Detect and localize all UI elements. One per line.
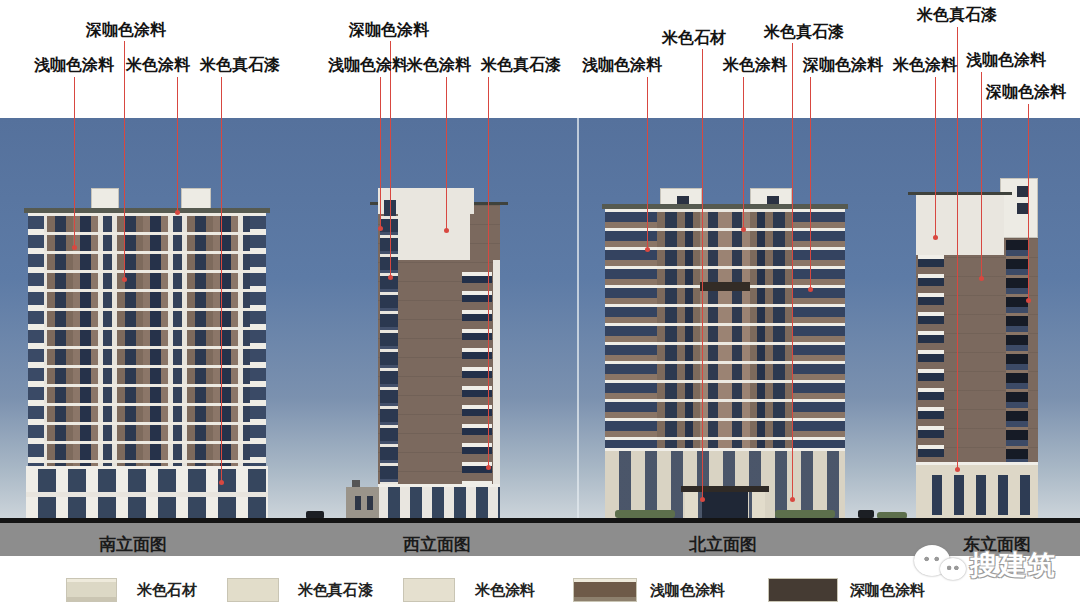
callout-leader-line [446,77,447,231]
material-callout-label: 深咖色涂料 [803,55,883,76]
balcony-stack [605,209,657,448]
upper-white-band [916,195,1004,255]
facade [28,213,266,466]
legend-label: 浅咖色涂料 [650,581,725,600]
legend-swatch-beige-paint [403,578,455,602]
balcony-stack [28,213,44,466]
legend-swatch-beige-stone-paint [227,578,279,602]
material-callout-label: 米色涂料 [407,55,471,76]
legend-label: 米色真石漆 [298,581,373,600]
balcony-stack [918,255,944,462]
callout-leader-line [647,77,648,250]
legend-swatch-beige-stone [66,578,117,602]
material-callout-label: 米色涂料 [126,55,190,76]
shrubs [775,510,835,518]
material-callout-label: 浅咖色涂料 [966,50,1046,71]
shrubs [615,510,675,518]
material-callout-label: 浅咖色涂料 [328,55,408,76]
callout-leader-line [74,77,75,248]
watermark-text: 搜建筑 [970,547,1057,583]
legend-label: 米色涂料 [475,581,535,600]
upper-white-band [398,214,470,260]
podium-windows [920,475,1034,515]
material-callout-label: 米色涂料 [893,55,957,76]
roof-vent [352,480,360,487]
legend-swatch-light-coffee-paint [573,578,637,602]
south-elevation-building [28,188,266,518]
entrance-pylon [685,492,698,518]
stepped-tower-top [1000,178,1038,238]
callout-leader-line [124,41,125,280]
material-callout-label: 深咖色涂料 [349,20,429,41]
car [858,510,874,518]
material-callout-label: 米色真石漆 [917,5,997,26]
annex-block [346,487,379,518]
material-callout-label: 米色真石漆 [481,55,561,76]
material-callout-label: 米色真石漆 [764,22,844,43]
callout-leader-line [221,77,222,483]
material-callout-label: 米色涂料 [723,55,787,76]
material-callout-label: 浅咖色涂料 [34,55,114,76]
balcony-stack [250,213,266,466]
material-callout-label: 米色真石漆 [200,55,280,76]
elevation-sheet: 南立面图 西立面图 北立面图 东立面图 浅咖色涂料 深咖色涂料 米色涂料 米色真… [0,0,1080,616]
entrance-door-glass [702,492,748,518]
callout-leader-line [810,77,811,290]
podium-storefront [26,466,268,518]
annex-windows [349,496,376,510]
window-column [1006,240,1028,462]
penthouse-box [91,188,119,209]
bridge-band [700,282,750,291]
callout-leader-line [390,41,391,278]
penthouse-box [181,188,211,209]
souarch-watermark: 搜建筑 [908,543,1078,591]
material-callout-label: 深咖色涂料 [986,82,1066,103]
caption-north-elevation: 北立面图 [689,533,757,556]
callout-leader-line [702,49,703,500]
callout-leader-line [981,72,982,279]
podium [916,462,1038,518]
caption-west-elevation: 西立面图 [403,533,471,556]
caption-south-elevation: 南立面图 [99,533,167,556]
edge-pier [493,260,500,484]
material-callout-label: 深咖色涂料 [86,20,166,41]
callout-leader-line [792,43,793,500]
callout-leader-line [1028,104,1029,301]
sheet-divider-line [577,118,579,518]
legend-swatch-dark-coffee-paint [768,578,838,602]
podium-storefront [378,484,500,518]
window-column [380,216,398,484]
wechat-icon [940,558,966,580]
callout-leader-line [957,27,958,470]
entrance-pylon [752,492,765,518]
west-elevation-building [378,186,500,518]
callout-leader-line [935,77,936,238]
balcony-stack [793,209,845,448]
callout-leader-line [380,77,381,229]
callout-leader-line [488,77,489,468]
material-callout-label: 米色石材 [662,28,726,49]
material-callout-label: 浅咖色涂料 [582,55,662,76]
north-elevation-building [605,186,845,518]
callout-leader-line [177,77,178,213]
legend-label: 米色石材 [137,581,197,600]
callout-leader-line [743,77,744,230]
